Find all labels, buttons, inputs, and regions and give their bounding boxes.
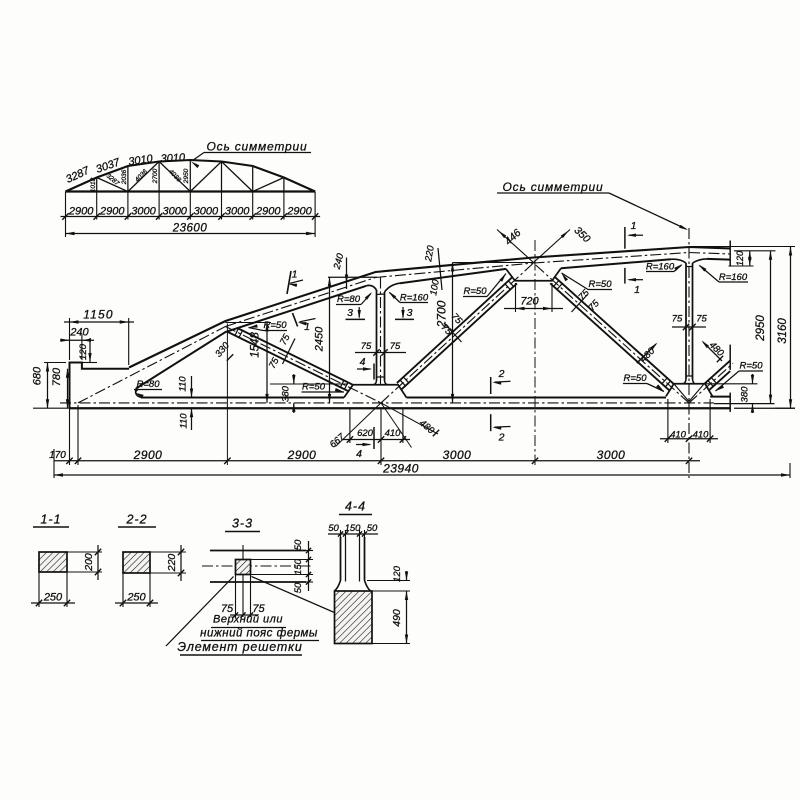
svg-text:1: 1 xyxy=(631,220,637,232)
svg-text:250: 250 xyxy=(126,592,146,604)
svg-text:1: 1 xyxy=(304,321,310,333)
svg-text:410: 410 xyxy=(670,430,687,441)
svg-text:R=160: R=160 xyxy=(400,293,429,304)
svg-text:3000: 3000 xyxy=(194,206,219,218)
svg-text:3160: 3160 xyxy=(777,318,789,344)
svg-text:2950: 2950 xyxy=(183,168,190,184)
svg-text:110: 110 xyxy=(179,413,190,429)
svg-text:50: 50 xyxy=(328,523,339,534)
svg-text:50: 50 xyxy=(293,539,304,550)
svg-text:1548: 1548 xyxy=(250,332,262,358)
svg-text:2700: 2700 xyxy=(152,168,159,184)
svg-text:2: 2 xyxy=(498,432,505,444)
svg-text:680: 680 xyxy=(32,366,44,385)
svg-text:780: 780 xyxy=(51,367,63,386)
svg-text:3000: 3000 xyxy=(597,448,626,462)
svg-text:нижний пояс фермы: нижний пояс фермы xyxy=(200,628,318,640)
svg-text:380: 380 xyxy=(281,385,292,402)
svg-text:1-1: 1-1 xyxy=(40,513,61,527)
svg-text:240: 240 xyxy=(69,327,89,339)
svg-text:R=80: R=80 xyxy=(337,294,361,305)
svg-text:120: 120 xyxy=(392,565,403,582)
svg-text:R=50: R=50 xyxy=(589,279,613,290)
svg-text:2900: 2900 xyxy=(287,448,317,462)
svg-text:75: 75 xyxy=(696,314,707,325)
svg-text:3000: 3000 xyxy=(443,448,472,462)
svg-text:23600: 23600 xyxy=(172,223,208,235)
svg-text:3: 3 xyxy=(407,307,413,319)
svg-text:3000: 3000 xyxy=(225,206,250,218)
svg-text:2036: 2036 xyxy=(121,169,128,185)
svg-text:200: 200 xyxy=(83,553,95,572)
svg-text:220: 220 xyxy=(166,554,178,573)
svg-text:2700: 2700 xyxy=(435,300,449,328)
svg-text:1018: 1018 xyxy=(90,177,97,192)
svg-text:Ось симметрии: Ось симметрии xyxy=(503,180,604,194)
svg-text:2900: 2900 xyxy=(99,206,125,218)
svg-text:620: 620 xyxy=(357,428,374,439)
svg-text:75: 75 xyxy=(672,314,683,325)
svg-text:Элемент решетки: Элемент решетки xyxy=(177,640,302,654)
svg-text:3: 3 xyxy=(347,307,353,319)
svg-text:3000: 3000 xyxy=(162,206,187,218)
svg-text:2: 2 xyxy=(498,368,505,380)
svg-text:250: 250 xyxy=(43,592,63,604)
svg-text:R=50: R=50 xyxy=(740,361,764,372)
svg-text:Верхний или: Верхний или xyxy=(213,614,283,626)
svg-text:720: 720 xyxy=(520,296,539,308)
svg-text:1: 1 xyxy=(292,269,298,281)
svg-text:R=160: R=160 xyxy=(719,272,748,283)
svg-text:2900: 2900 xyxy=(133,448,163,462)
svg-text:R=160: R=160 xyxy=(646,262,675,273)
svg-text:R=50: R=50 xyxy=(302,382,326,393)
svg-text:Ось симметрии: Ось симметрии xyxy=(207,140,308,154)
svg-text:2900: 2900 xyxy=(255,206,281,218)
svg-text:50: 50 xyxy=(293,582,304,593)
svg-text:50: 50 xyxy=(367,523,378,534)
svg-text:23940: 23940 xyxy=(382,462,419,476)
svg-text:170: 170 xyxy=(49,450,66,461)
svg-text:490: 490 xyxy=(391,609,403,627)
svg-text:1: 1 xyxy=(634,284,640,296)
svg-text:4: 4 xyxy=(360,356,366,368)
svg-text:R=50: R=50 xyxy=(264,320,288,331)
svg-text:3010: 3010 xyxy=(160,152,186,165)
svg-text:2900: 2900 xyxy=(68,206,94,218)
svg-text:75: 75 xyxy=(390,341,401,352)
svg-text:2900: 2900 xyxy=(286,206,312,218)
svg-text:120: 120 xyxy=(735,251,745,266)
svg-text:2450: 2450 xyxy=(314,326,326,352)
svg-text:120: 120 xyxy=(78,343,89,360)
svg-text:2-2: 2-2 xyxy=(125,513,147,527)
svg-text:4-4: 4-4 xyxy=(345,500,366,514)
svg-text:3000: 3000 xyxy=(131,206,156,218)
svg-text:4: 4 xyxy=(356,448,362,460)
svg-text:R=50: R=50 xyxy=(624,373,648,384)
svg-text:1150: 1150 xyxy=(83,308,114,322)
svg-text:150: 150 xyxy=(345,523,362,534)
svg-text:75: 75 xyxy=(361,341,372,352)
svg-text:3-3: 3-3 xyxy=(232,517,253,531)
svg-text:150: 150 xyxy=(293,558,304,575)
svg-text:R=50: R=50 xyxy=(464,286,488,297)
svg-text:410: 410 xyxy=(385,428,402,439)
svg-text:R=80: R=80 xyxy=(137,379,161,390)
svg-text:410: 410 xyxy=(693,430,710,441)
svg-text:2950: 2950 xyxy=(755,315,767,342)
svg-text:110: 110 xyxy=(178,376,189,392)
svg-text:380: 380 xyxy=(740,386,751,403)
